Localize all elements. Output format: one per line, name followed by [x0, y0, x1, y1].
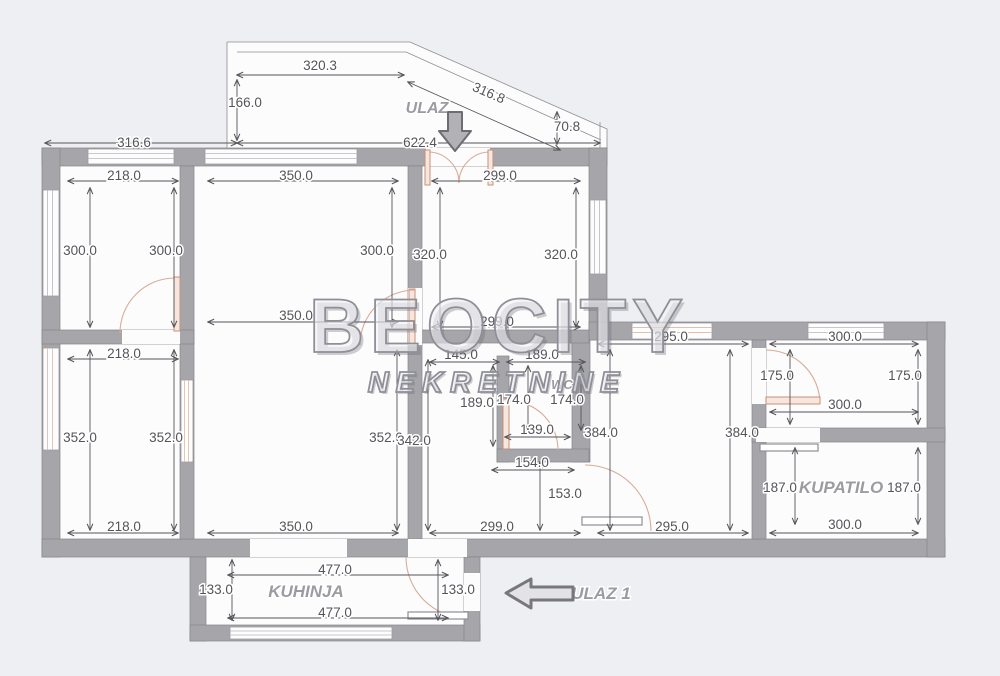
dim-top-right-room-width-top: 300.0 [828, 329, 862, 344]
dim-corridor-height: 342.0 [397, 433, 431, 448]
dim-hall-width-bottom: 299.0 [480, 519, 514, 534]
dim-balcony-right-height: 70.8 [554, 119, 580, 134]
dim-top-right-room-height-left: 175.0 [760, 368, 794, 383]
dim-room1-height-right: 300.0 [149, 243, 183, 258]
dim-room1-width-top: 218.0 [107, 168, 141, 183]
dim-wing-room-height-right: 384.0 [725, 425, 759, 440]
sliding-door-bathroom [760, 444, 818, 451]
dim-room1-height-left: 300.0 [63, 243, 97, 258]
dim-room2-width-bottom: 218.0 [107, 519, 141, 534]
label-kitchen: KUHINJA [268, 582, 344, 601]
window-kitchen-bottom [230, 627, 392, 639]
label-bathroom: KUPATILO [799, 478, 883, 497]
dim-wing-room-height-left: 384.0 [584, 425, 618, 440]
dim-bathroom-height-right: 187.0 [887, 480, 921, 495]
dim-passage-height: 153.0 [548, 486, 582, 501]
dim-living-width-top: 350.0 [279, 168, 313, 183]
dim-balcony-width: 320.3 [303, 58, 337, 73]
watermark-subtitle: NEKRETNINE [368, 367, 627, 399]
dim-kitchen-width-bottom: 477.0 [318, 605, 352, 620]
dim-top-left: 316.6 [117, 135, 151, 150]
dim-wc-inner-width: 139.0 [520, 422, 554, 437]
dim-hall-height-left: 320.0 [413, 247, 447, 262]
dim-kitchen-width-top: 477.0 [318, 562, 352, 577]
dim-top-right-room-width-bottom: 300.0 [828, 397, 862, 412]
dim-top-right-room-height-right: 175.0 [888, 368, 922, 383]
window-living-top [205, 149, 357, 164]
label-entrance-secondary: ULAZ 1 [571, 584, 631, 603]
dim-balcony-height: 166.0 [228, 95, 262, 110]
dim-hall-height-right: 320.0 [544, 247, 578, 262]
window-hall-right [590, 200, 606, 274]
dim-hall-width-top: 299.0 [483, 168, 517, 183]
label-entrance: ULAZ [406, 100, 450, 117]
dim-wc-lower-width: 154.0 [515, 455, 549, 470]
dim-kitchen-height-right: 133.0 [441, 582, 475, 597]
dim-living-width-bottom: 350.0 [279, 519, 313, 534]
dim-room2-height-right: 352.0 [149, 430, 183, 445]
watermark-title: BEOCITY [309, 284, 689, 369]
window-left-upper [43, 190, 59, 296]
dim-bathroom-width-bottom: 300.0 [828, 517, 862, 532]
dim-room2-width-top: 218.0 [107, 346, 141, 361]
floor-plan: 320.3 166.0 316.8 70.8 622.4 316.6 218.0… [0, 0, 1000, 676]
window-top-left-room [88, 149, 174, 164]
dim-kitchen-height-left: 133.0 [199, 582, 233, 597]
window-left-lower [43, 348, 59, 450]
dim-living-height-upper: 300.0 [360, 243, 394, 258]
dim-top-total: 622.4 [403, 135, 437, 150]
dim-wing-room-width-bottom: 295.0 [655, 519, 689, 534]
glazed-partition-left [181, 380, 193, 462]
dim-living-width-mid: 350.0 [279, 308, 313, 323]
dim-bathroom-height-left: 187.0 [763, 480, 797, 495]
dim-room2-height-left: 352.0 [63, 430, 97, 445]
